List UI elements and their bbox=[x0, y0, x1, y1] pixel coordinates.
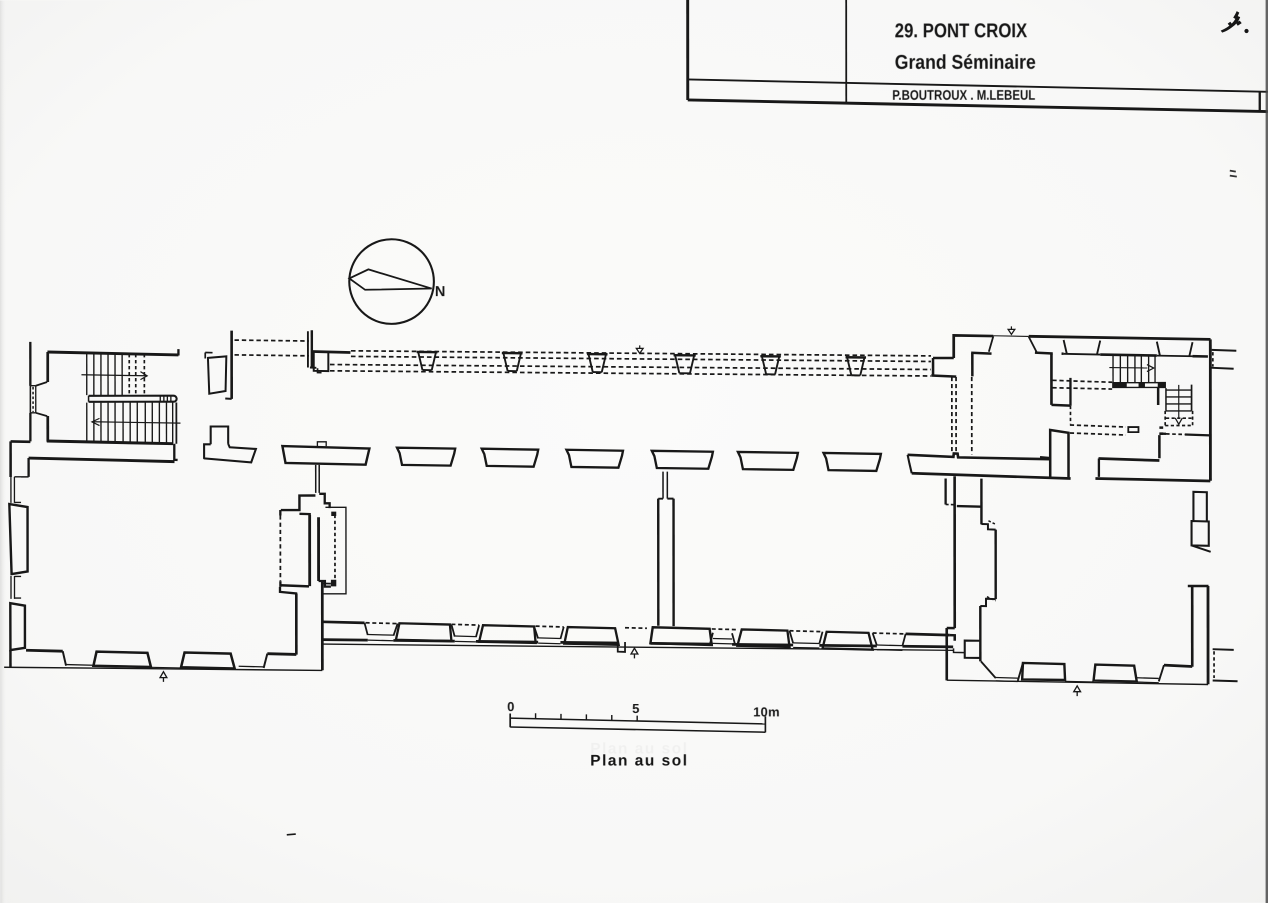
svg-text:29. PONT CROIX: 29. PONT CROIX bbox=[895, 20, 1028, 42]
svg-text:0: 0 bbox=[507, 699, 514, 714]
svg-text:Grand Séminaire: Grand Séminaire bbox=[895, 52, 1036, 74]
svg-text:N: N bbox=[435, 284, 445, 300]
svg-text:5: 5 bbox=[632, 701, 639, 716]
svg-text:10m: 10m bbox=[753, 704, 780, 719]
svg-text:P.BOUTROUX . M.LEBEUL: P.BOUTROUX . M.LEBEUL bbox=[892, 87, 1035, 103]
svg-text:Plan au sol: Plan au sol bbox=[590, 740, 688, 757]
